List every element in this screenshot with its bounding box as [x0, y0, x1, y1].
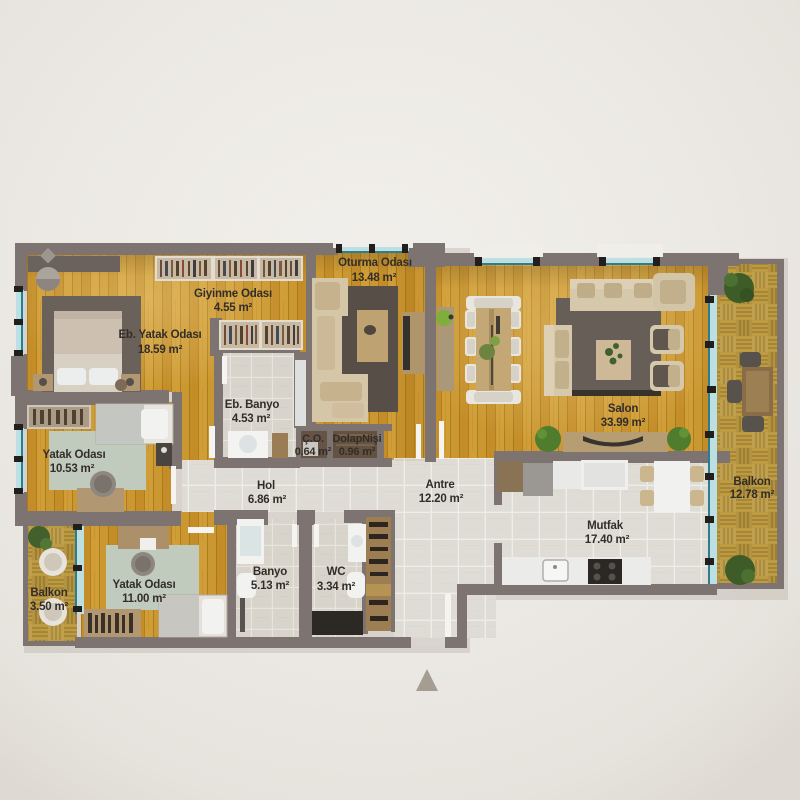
svg-text:17.40 m²: 17.40 m²: [585, 534, 630, 546]
svg-text:13.48 m²: 13.48 m²: [352, 272, 397, 284]
svg-text:DolapNişi: DolapNişi: [333, 433, 382, 445]
svg-text:11.00 m²: 11.00 m²: [122, 593, 166, 605]
svg-text:Banyo: Banyo: [253, 566, 287, 578]
svg-text:Balkon: Balkon: [733, 476, 770, 488]
svg-text:Hol: Hol: [257, 480, 275, 492]
svg-text:6.86 m²: 6.86 m²: [248, 494, 287, 506]
svg-text:0.64 m²: 0.64 m²: [295, 446, 332, 458]
svg-text:Giyinme Odası: Giyinme Odası: [194, 288, 272, 300]
svg-text:Balkon: Balkon: [30, 587, 67, 599]
svg-text:Salon: Salon: [608, 403, 638, 415]
svg-text:4.53 m²: 4.53 m²: [232, 413, 271, 425]
svg-text:10.53 m²: 10.53 m²: [50, 463, 95, 475]
svg-text:3.50 m²: 3.50 m²: [30, 601, 69, 613]
svg-text:Ç.O.: Ç.O.: [302, 433, 324, 445]
svg-text:33.99 m²: 33.99 m²: [601, 417, 646, 429]
svg-text:Yatak Odası: Yatak Odası: [112, 579, 175, 591]
svg-text:Yatak Odası: Yatak Odası: [42, 449, 105, 461]
svg-text:4.55 m²: 4.55 m²: [214, 302, 253, 314]
svg-text:Mutfak: Mutfak: [587, 520, 624, 532]
svg-text:WC: WC: [327, 566, 346, 578]
svg-text:5.13 m²: 5.13 m²: [251, 580, 290, 592]
svg-text:0.96 m²: 0.96 m²: [339, 446, 376, 458]
svg-text:3.34 m²: 3.34 m²: [317, 581, 356, 593]
svg-text:Eb. Banyo: Eb. Banyo: [225, 399, 280, 411]
svg-text:12.78 m²: 12.78 m²: [730, 489, 775, 501]
svg-text:Antre: Antre: [425, 479, 454, 491]
svg-text:18.59 m²: 18.59 m²: [138, 344, 183, 356]
svg-text:Oturma Odası: Oturma Odası: [338, 257, 412, 269]
svg-text:12.20 m²: 12.20 m²: [419, 493, 464, 505]
svg-text:Eb. Yatak Odası: Eb. Yatak Odası: [118, 329, 201, 341]
